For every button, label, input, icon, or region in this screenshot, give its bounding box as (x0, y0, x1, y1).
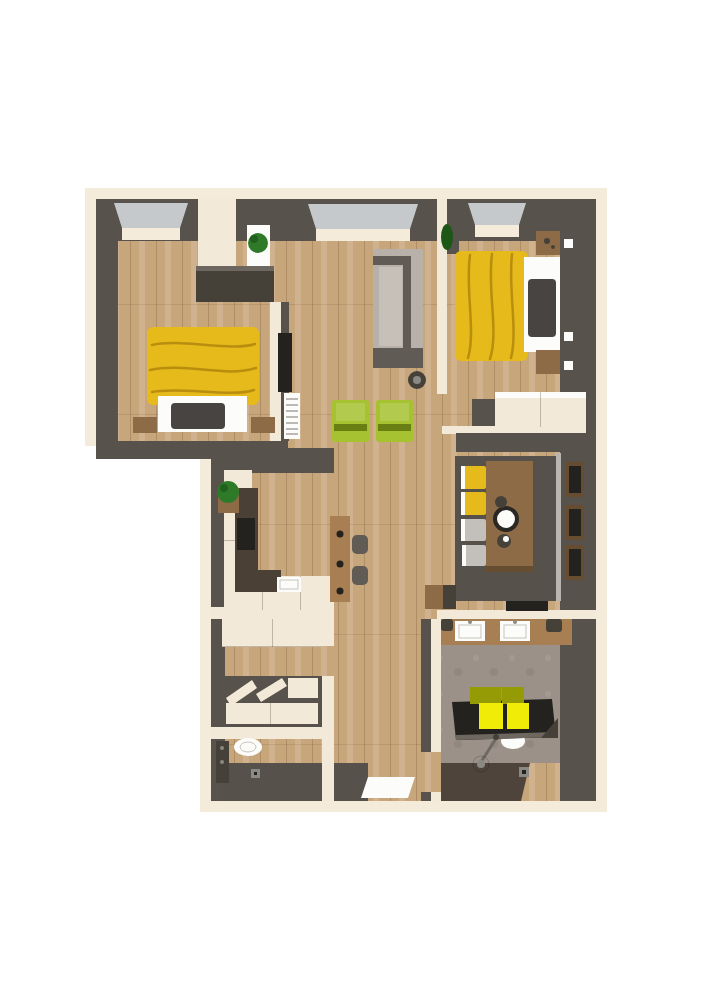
wall-socket-1 (564, 239, 573, 248)
floor-plan-image (0, 0, 707, 1000)
bar-knob-3 (337, 588, 344, 595)
sofa-back (403, 256, 411, 351)
bath-towel-yellow-1 (479, 703, 503, 729)
wall-hall-bath-a (431, 619, 441, 752)
window-bedroom2-sill (475, 225, 519, 237)
dining-chair-gray-2-back (462, 545, 466, 566)
storage-shelf-flat (288, 678, 318, 698)
bed1-pillow (171, 403, 225, 429)
bar-knob-1 (337, 531, 344, 538)
wall-shelf-slot-3 (569, 549, 581, 576)
wall-bedroom2-south-shadow (456, 433, 586, 452)
storage-drawer-row (226, 703, 318, 724)
trim-east (596, 188, 607, 812)
nightstand-decor-1 (544, 238, 550, 244)
toilet (234, 738, 262, 756)
kitchen-countertop-corner (235, 570, 281, 592)
bath-faucet-1 (468, 620, 472, 624)
kitchen-sink (277, 577, 301, 592)
plant-bedroom2 (441, 224, 453, 250)
bar-stool-2 (352, 566, 368, 585)
wall-storage-hall-b (322, 676, 334, 801)
hallway (361, 777, 415, 798)
wall-bedroom2-south (442, 426, 586, 434)
wc-radiator-knob-1 (220, 746, 224, 750)
radiator-living-fins (286, 399, 298, 434)
dining-floor-edge (556, 453, 561, 601)
plant-living-shade (250, 235, 258, 243)
dining-chair-yellow-2-back (461, 492, 465, 515)
bath-towel-dark-1 (441, 619, 453, 631)
bar-stool-1 (352, 535, 368, 554)
bath-towel-yellow-2 (507, 703, 529, 729)
cooktop (237, 518, 255, 550)
sofa-arm-bottom (373, 348, 423, 368)
wall-hall-bath-b (431, 792, 441, 801)
wall-socket-3 (564, 361, 573, 370)
bed1-nightstand-left (133, 417, 157, 433)
wall-storage-wc (211, 727, 322, 739)
window-bedroom1 (114, 203, 188, 228)
living-wall-tv (278, 333, 292, 392)
bath-floor-drain-center (522, 770, 526, 774)
wc-dark-floor (222, 763, 322, 801)
decor-basket-center (413, 376, 421, 384)
dining-table-edge (486, 566, 533, 572)
wall-hall-bath-shadow-a (421, 619, 431, 752)
hall-side-cabinet-dark (443, 585, 456, 609)
wall-west-upper (96, 241, 118, 441)
bed2-pillow (528, 279, 556, 337)
bath-towel-olive-2 (502, 687, 524, 704)
sofa-seat (379, 267, 402, 346)
wall-kitchen-north (217, 448, 334, 473)
radiator-living (284, 393, 300, 439)
shower-joint (493, 734, 499, 740)
window-living-sill (316, 229, 410, 241)
nightstand-decor-2 (551, 245, 555, 249)
dining-chair-yellow-1-back (461, 466, 465, 489)
bedroom1-closet-edge (196, 266, 274, 271)
window-living (308, 204, 418, 229)
dining-plate-large (495, 508, 517, 530)
kitchen-plant-shade (220, 484, 228, 492)
wall-dining-bath (437, 610, 596, 619)
armchair-green-1-seam (334, 424, 367, 431)
shower-floor (441, 763, 530, 801)
wc-floor-drain-center (254, 772, 257, 775)
window-bedroom2 (468, 203, 526, 225)
wall-storage-hall-a (322, 619, 334, 646)
wall-bedroom2-stub (472, 399, 496, 430)
plant-living (248, 233, 268, 253)
wc-radiator-knob-2 (220, 760, 224, 764)
wall-east (560, 199, 596, 801)
bath-faucet-2 (513, 620, 517, 624)
bedroom1-closet (196, 266, 274, 302)
bath-towel-dark-2 (546, 619, 562, 632)
wall-shelf-slot-2 (569, 509, 581, 536)
trim-north (85, 188, 607, 199)
wall-shelf-slot-1 (569, 466, 581, 493)
bar-knob-2 (337, 561, 344, 568)
wall-bedroom1-closet-top (198, 199, 236, 266)
bed2-nightstand-bottom (536, 350, 560, 374)
trim-west-lower (200, 446, 211, 801)
bed1-nightstand-right (251, 417, 275, 433)
entrance-mat (361, 777, 415, 798)
dining-bowl-top (495, 496, 507, 508)
trim-west-upper (85, 199, 96, 446)
wall-socket-2 (564, 332, 573, 341)
trim-south (200, 801, 607, 812)
dining-bowl-highlight (503, 536, 509, 542)
kitchen-plant (217, 481, 239, 503)
wall-hall-bath-shadow-b (421, 792, 431, 801)
outside-mask (85, 446, 200, 812)
dining-chair-gray-1-back (461, 519, 465, 541)
window-bedroom1-sill (122, 228, 180, 240)
shower-head-center (477, 760, 485, 768)
armchair-green-2-seam (378, 424, 411, 431)
bath-towel-olive-1 (470, 687, 501, 704)
